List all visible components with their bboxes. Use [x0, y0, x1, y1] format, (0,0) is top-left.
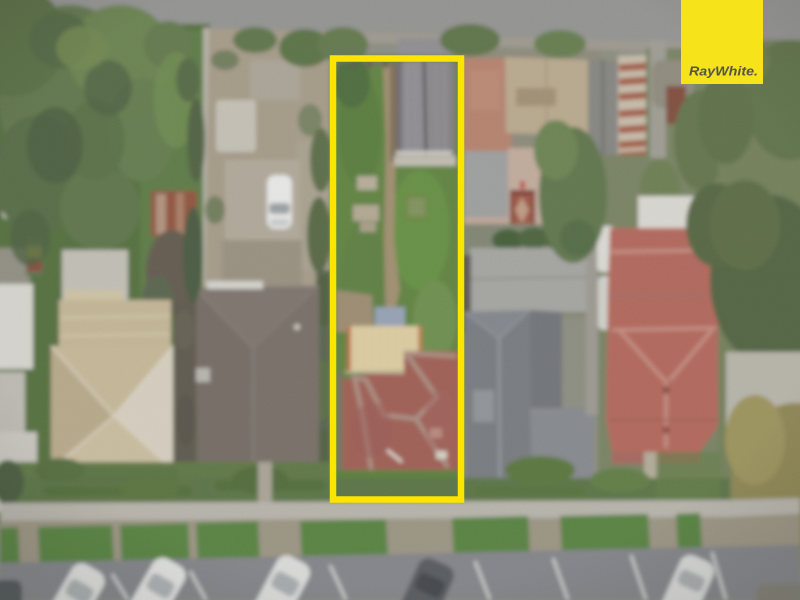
svg-text:RayWhite.: RayWhite. — [689, 64, 758, 79]
